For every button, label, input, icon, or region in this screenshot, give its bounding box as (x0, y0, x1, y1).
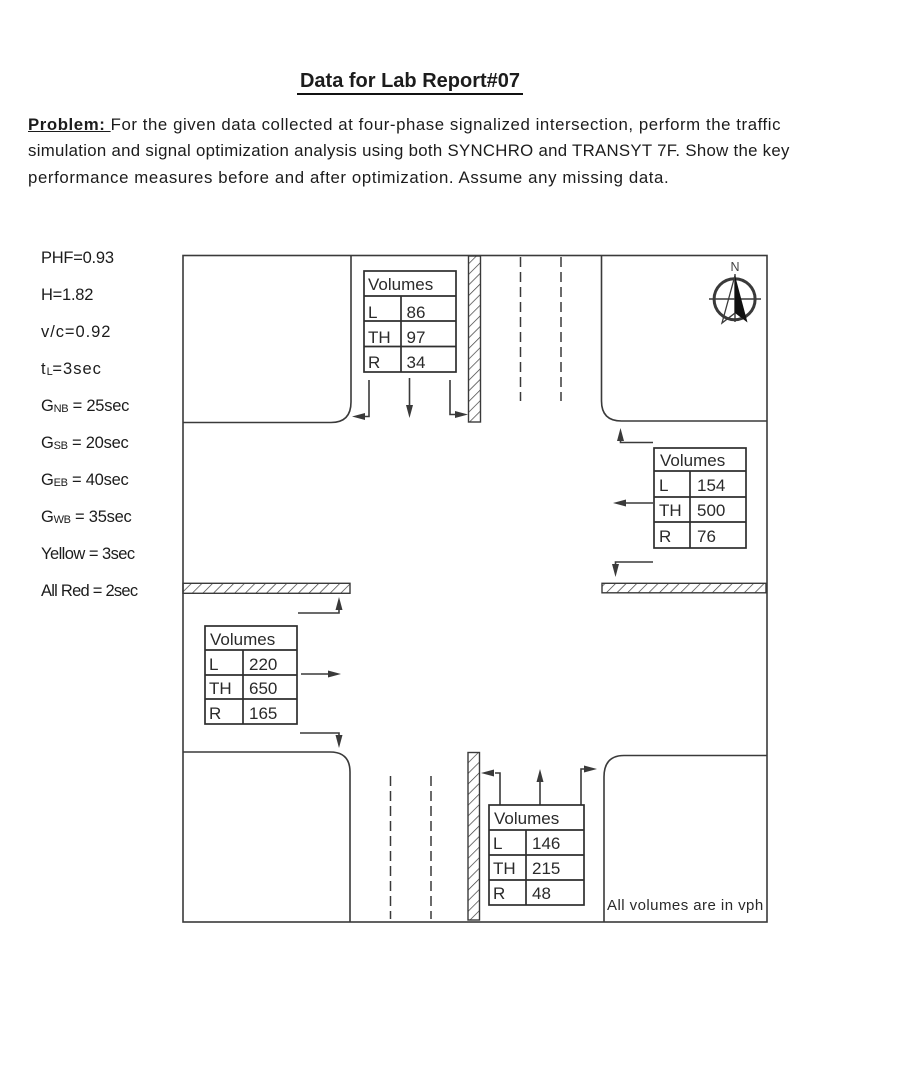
svg-text:L: L (659, 476, 668, 495)
svg-text:500: 500 (697, 501, 725, 520)
svg-text:L: L (209, 655, 218, 674)
svg-text:TH: TH (368, 328, 391, 347)
svg-text:Volumes: Volumes (210, 630, 275, 649)
svg-text:R: R (659, 527, 671, 546)
svg-text:76: 76 (697, 527, 716, 546)
svg-text:48: 48 (532, 884, 551, 903)
svg-text:215: 215 (532, 859, 560, 878)
svg-text:L: L (493, 834, 502, 853)
svg-text:Volumes: Volumes (494, 809, 559, 828)
svg-text:TH: TH (493, 859, 516, 878)
svg-text:154: 154 (697, 476, 725, 495)
svg-text:TH: TH (209, 679, 232, 698)
svg-text:165: 165 (249, 704, 277, 723)
svg-text:86: 86 (407, 303, 426, 322)
svg-text:34: 34 (407, 353, 426, 372)
svg-text:Volumes: Volumes (660, 451, 725, 470)
svg-text:97: 97 (407, 328, 426, 347)
svg-text:Volumes: Volumes (368, 275, 433, 294)
svg-text:R: R (368, 353, 380, 372)
svg-text:146: 146 (532, 834, 560, 853)
svg-text:L: L (368, 303, 377, 322)
svg-text:R: R (209, 704, 221, 723)
svg-text:650: 650 (249, 679, 277, 698)
svg-text:N: N (730, 260, 739, 274)
svg-text:R: R (493, 884, 505, 903)
svg-text:TH: TH (659, 501, 682, 520)
svg-text:220: 220 (249, 655, 277, 674)
svg-text:All volumes are in vph: All volumes are in vph (607, 897, 764, 914)
